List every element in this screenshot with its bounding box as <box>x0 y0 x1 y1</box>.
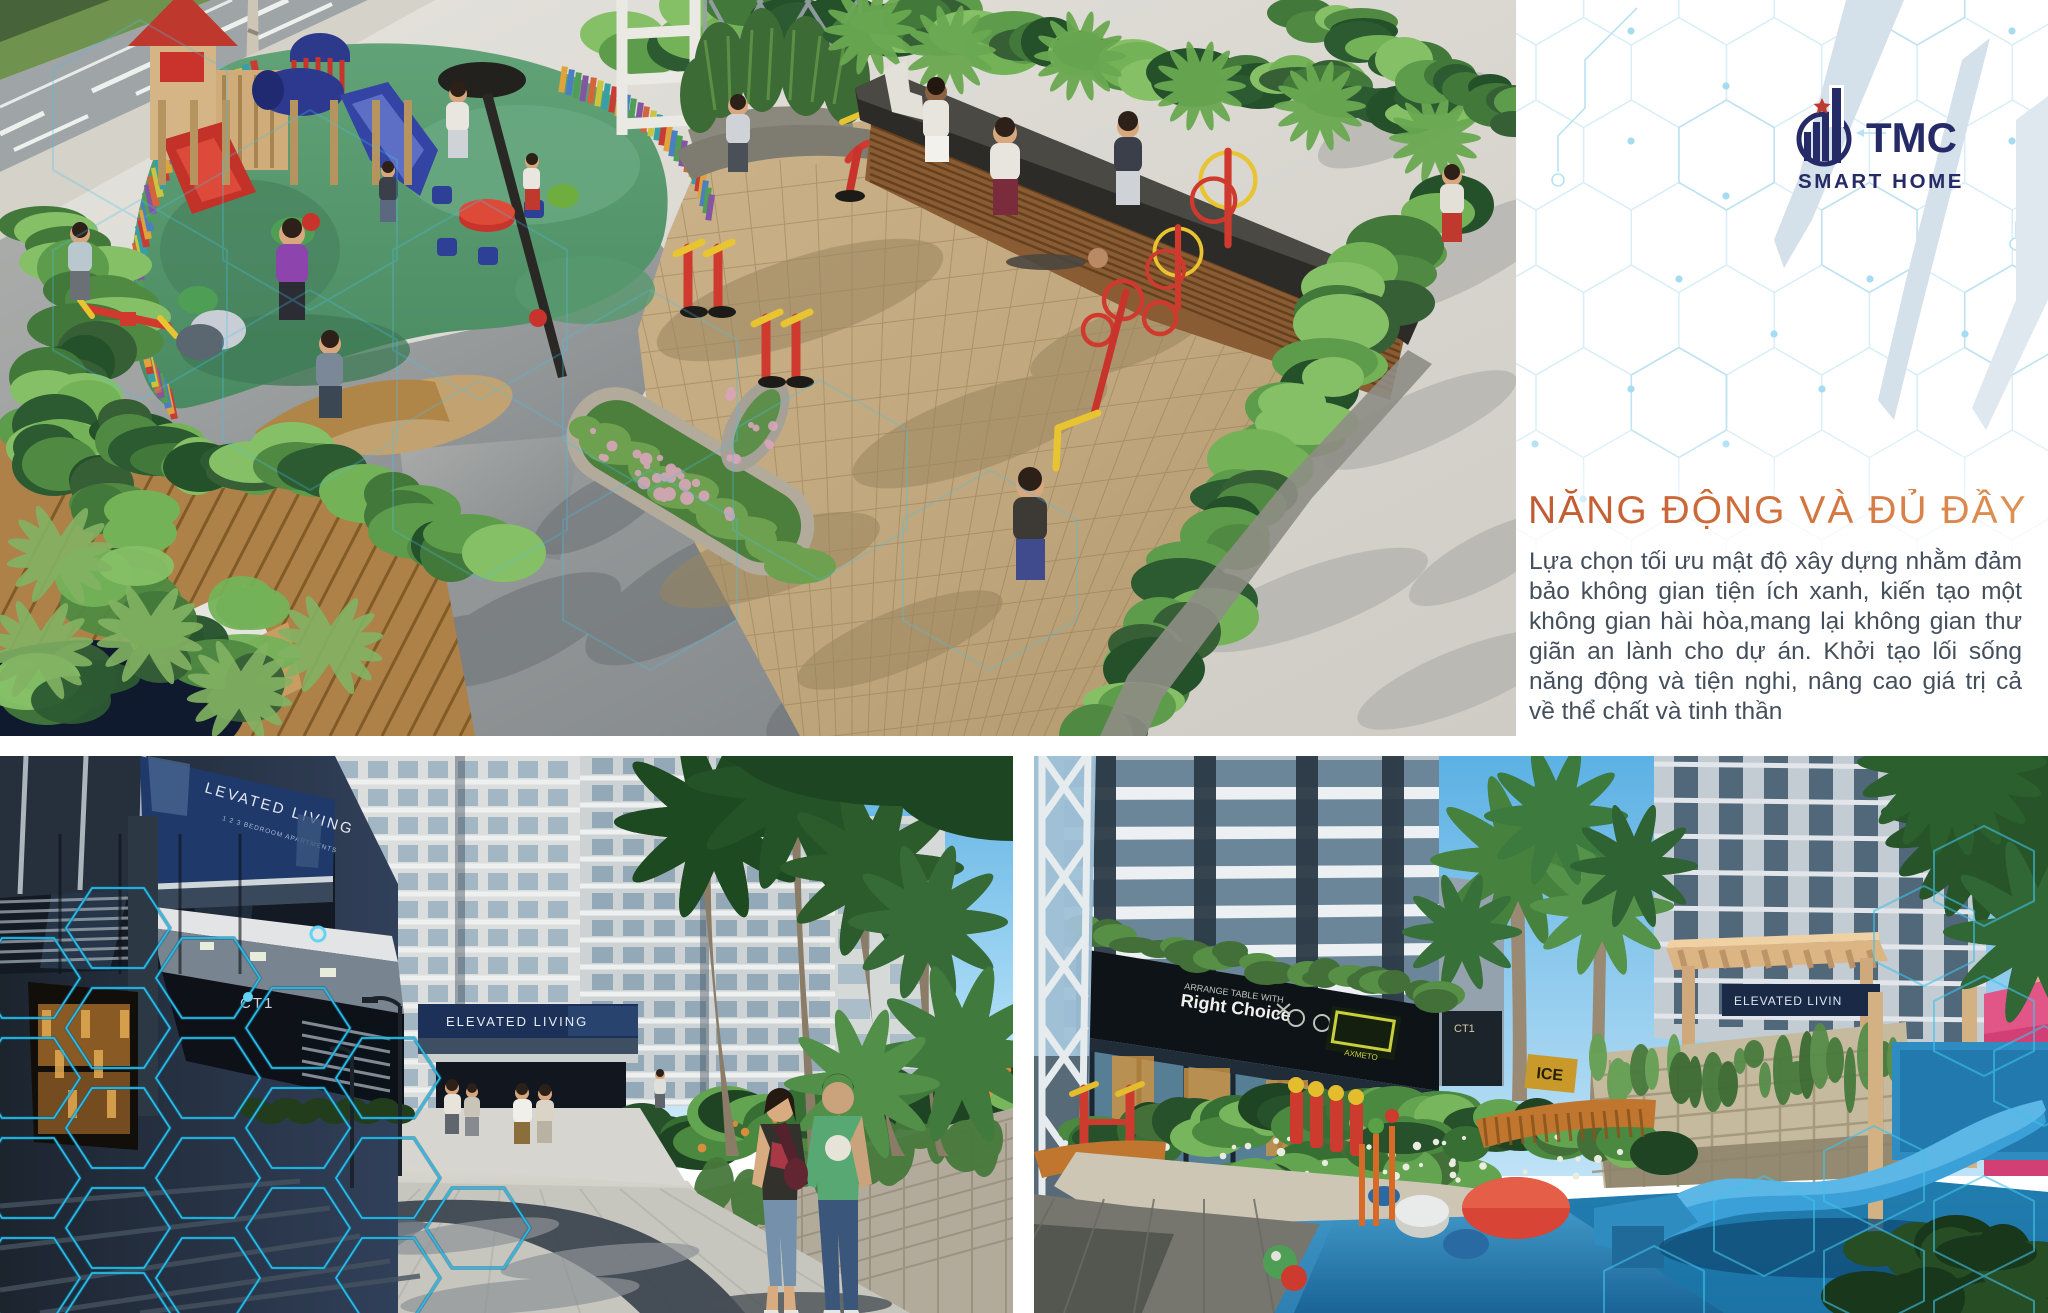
svg-text:TMC: TMC <box>1866 114 1957 161</box>
svg-text:CT1: CT1 <box>1454 1023 1475 1035</box>
svg-text:ELEVATED LIVING: ELEVATED LIVING <box>446 1014 588 1029</box>
svg-text:ELEVATED LIVIN: ELEVATED LIVIN <box>1734 994 1842 1008</box>
svg-text:SMART HOME: SMART HOME <box>1798 170 1964 193</box>
svg-text:ICE: ICE <box>1536 1065 1565 1085</box>
